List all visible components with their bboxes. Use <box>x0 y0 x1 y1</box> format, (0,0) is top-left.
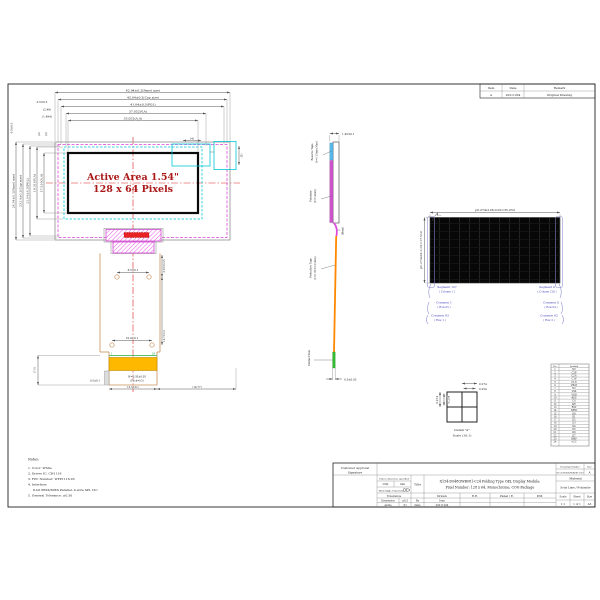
contact-area <box>333 352 336 368</box>
by-label: By <box>416 500 420 503</box>
pin-symbol: VCC <box>570 441 576 444</box>
detail-dim-2: (5) <box>240 154 244 158</box>
revision-date: 20211204 <box>506 93 521 97</box>
note-5: 5. General Tolerance: ±0.30 <box>28 493 72 497</box>
detail-a-caption: Detail "A" <box>454 428 470 432</box>
common-right-1-sub: ( Row 64 ) <box>544 306 557 309</box>
holes-spacing-top: 8.5±0.1 <box>128 268 139 272</box>
offset-1: 0.5±0.3 <box>37 100 48 104</box>
third-angle-projection-symbol <box>403 489 409 492</box>
fpc-length-2: 16.7±0.3 <box>163 330 166 342</box>
signature-label: Signature <box>348 471 363 475</box>
common-right-1-label: Common 0 <box>543 301 559 305</box>
alignment-hole <box>115 275 119 279</box>
drawing-canvas: Item Date Remark A 20211204 Original Dra… <box>0 0 600 600</box>
detail-a-view: 0.274 0.254 0.274 0.254 Detail "A" Scale… <box>435 382 487 438</box>
date-label: Date <box>415 504 421 507</box>
pixel-pitch-dim: 0.274 <box>479 382 487 386</box>
common-left-1-sub: ( Row 63 ) <box>437 306 450 309</box>
tail-left-height: (7.0) <box>34 367 37 373</box>
panel-e-header: Panel / E. <box>500 494 514 498</box>
unless-label: Unless otherwise specified <box>379 478 409 481</box>
pixel-pitch-dim-v: 0.274 <box>435 396 439 404</box>
dim-aa-height: 17.516(A.A) <box>40 174 44 193</box>
side-view: 1.45±0.1 Reserve Tape (t=0.15mm Max) Pol… <box>308 132 357 381</box>
segment-right-sub: ( Column 128 ) <box>538 290 557 293</box>
pixel-size-dim: 0.254 <box>479 387 487 391</box>
offset-2: (2.49) <box>43 108 51 112</box>
reserve-tape-thickness: (t=0.15mm Max) <box>316 141 319 163</box>
detail-callout-box <box>214 142 236 170</box>
alignment-hole <box>110 343 114 347</box>
note-4b: 8-bit 68XX/80XX Parallel, 4-wire SPI, I2… <box>33 488 98 492</box>
glass-stack <box>333 142 339 223</box>
pin-table: No. Symbol 1NC2C2P3C2N4C1P5C1N6VBAT7NC8V… <box>551 364 589 446</box>
bend-label: (Bend) <box>342 227 345 236</box>
ee-header: E.E. <box>472 494 478 498</box>
pixel-matrix <box>430 218 560 284</box>
common-right-2-sub: ( Row 2 ) <box>543 319 554 322</box>
right-reference: (14.77) <box>192 386 201 389</box>
material-value: Soda Lime / Polyimide <box>560 486 591 490</box>
dim-va-width: 37.052(V.A) <box>129 110 147 114</box>
offset-4: 0.5±0.3 <box>10 122 14 133</box>
offset-3: (1.494) <box>42 115 52 119</box>
note-3: 3. FPC Number: WFP1116-05 <box>28 477 75 481</box>
unit-value: mm <box>400 482 406 486</box>
rev-value: A <box>587 471 591 475</box>
finger-width: W=0.35±0.05 <box>128 376 146 379</box>
detail-a-marker: A <box>434 212 439 218</box>
segment-right-label: Segment 0 <box>539 285 555 289</box>
revision-header-date: Date <box>510 86 517 90</box>
driver-ic-area <box>124 233 149 238</box>
dimension-label: Dimension <box>381 500 395 503</box>
revision-header-remark: Remark <box>554 86 566 90</box>
contact-width: 12.5±0.1 <box>127 386 139 389</box>
revision-remark: Original Drawing <box>547 93 573 97</box>
revision-table: Item Date Remark A 20211204 Original Dra… <box>480 84 595 98</box>
revision-header-item: Item <box>488 86 495 90</box>
size-value: A3 <box>587 502 592 506</box>
common-left-2-sub: ( Row 1 ) <box>434 319 445 322</box>
dim-pol-height: 21.04±0.3(POL) <box>26 178 30 203</box>
pm-header: P.M. <box>537 494 543 498</box>
rev-label: Rev. <box>587 466 592 469</box>
segment-left-label: Segment 127 <box>437 285 457 289</box>
protective-tape-thickness: (t=0.05±0.01mm) <box>314 256 317 279</box>
common-left-1-label: Common 1 <box>436 301 452 305</box>
note-4: 4. Interface: <box>28 483 47 487</box>
pixel-diagram: p0.274x128-0.02=35.052 p0.274x64-0.02=17… <box>419 208 564 324</box>
customer-approval-label: Customer Approval <box>341 466 369 470</box>
scale-label: Scale <box>560 495 567 498</box>
pin-1-label: 1 <box>111 352 113 355</box>
offset-5: (2) <box>37 132 41 136</box>
sheet-border <box>8 84 595 507</box>
pixel-count-label: 128 x 64 Pixels <box>93 184 173 195</box>
module-thickness: 1.45±0.1 <box>342 132 355 136</box>
unit-label: Unit <box>383 482 390 486</box>
dim-cap-width: 42.04±0.2(Cap size) <box>127 96 159 100</box>
drawing-number-label: Drawing Number <box>560 466 580 469</box>
segment-left-sub: ( Column 1 ) <box>439 290 455 293</box>
notes-block: Notes: 1. Color: White 2. Driver IC: CH1… <box>28 458 98 498</box>
alignment-hole <box>150 343 154 347</box>
date-value: 20211204 <box>436 504 449 507</box>
fpc-ribbon <box>334 236 336 352</box>
pin-24-label: 24 <box>152 352 156 355</box>
finger-offset: 0.5±0.1 <box>90 380 100 383</box>
sheet-value: 1 of 1 <box>573 502 581 506</box>
gold-finger-stiffener <box>109 358 157 371</box>
dim-va-height: 19.516(V.A) <box>33 174 37 192</box>
size-label: Size <box>587 495 593 498</box>
fpc-tail: 8.5±0.1 10.4±0.1 3.05±0.05 16.7±0.3 (7.0… <box>34 229 237 390</box>
dim-cap-height: 23.14±0.2(Cap size) <box>19 175 23 207</box>
title-block: Customer Approval Signature Drawing Numb… <box>333 463 595 507</box>
common-left-2-label: Common 63 <box>431 314 449 318</box>
fpc-length-1: 3.05±0.05 <box>163 259 166 273</box>
title-label: Title <box>414 483 421 487</box>
by-value: Ivan <box>439 500 445 503</box>
engineering-drawing-sheet: Item Date Remark A 20211204 Original Dra… <box>0 0 600 600</box>
active-area-label: Active Area 1.54" <box>86 172 179 183</box>
note-1: 1. Color: White <box>28 466 52 470</box>
offset-6: (2) <box>44 132 48 136</box>
dimension-tolerance: ±0.3 <box>402 500 408 503</box>
projection-label: Third Angle Projection <box>378 489 404 492</box>
title-line-1: X154-D048QWB081-C24 Folding Type OEL Dis… <box>440 480 541 484</box>
angle-label: Angle <box>383 504 392 507</box>
revision-item: A <box>489 93 493 97</box>
pixel-pitch-vertical: p0.274x64-0.02=17.516 <box>419 231 423 269</box>
material-label: Material <box>569 477 582 481</box>
pixel-size-dim-v: 0.254 <box>447 395 451 403</box>
tolerance-label: Tolerance <box>387 494 402 498</box>
pixel-pitch-horizontal: p0.274x128-0.02=35.052 <box>475 208 515 212</box>
drawing-number-value: X154-D048QWB081-C24 <box>556 471 584 474</box>
contact-thickness: 0.3±0.05 <box>344 377 357 381</box>
sheet-label: Sheet <box>573 495 580 498</box>
dim-aa-width: 35.052(A.A) <box>124 117 143 121</box>
dim-pol-width: 41.04±0.3(POL) <box>130 103 155 107</box>
contact-side-label: Contact Side <box>308 349 311 366</box>
polarizer-label: Polarizer <box>310 190 313 202</box>
polarizer <box>330 161 333 223</box>
alignment-hole <box>147 275 151 279</box>
dim-panel-height: 24.04±0.2(Panel size) <box>12 174 16 208</box>
detail-dim-1: (4) <box>190 136 194 140</box>
drawn-header: Drawn <box>437 494 447 498</box>
polarizer-thickness: (t=0.2mm) <box>314 189 317 203</box>
pin-rows: 1NC2C2P3C2N4C1P5C1N6VBAT7NC8VSS9VDD10RES… <box>551 368 589 444</box>
dim-panel-width: 42.94±0.2(Panel size) <box>126 89 160 93</box>
angle-tolerance: ±1 <box>403 504 407 507</box>
reserve-tape-label: Reserve Tape <box>311 143 314 161</box>
detail-a-scale: Scale (10:1) <box>453 434 472 438</box>
holes-spacing-bottom: 10.4±0.1 <box>126 336 139 340</box>
protective-tape-label: Protective Tape <box>310 258 313 278</box>
notes-title: Notes: <box>28 458 39 462</box>
scale-value: 1:1 <box>561 502 566 506</box>
note-2: 2. Driver IC: CH1116 <box>28 472 62 476</box>
fpc-bend <box>334 223 337 236</box>
common-right-2-label: Common 62 <box>540 314 558 318</box>
title-line-2: Pixel Number: 128 x 64, Monochrome, COG … <box>446 486 535 490</box>
pin-number: 24 <box>554 441 557 444</box>
finger-pitch: (Pitch=0.5) <box>130 380 143 383</box>
